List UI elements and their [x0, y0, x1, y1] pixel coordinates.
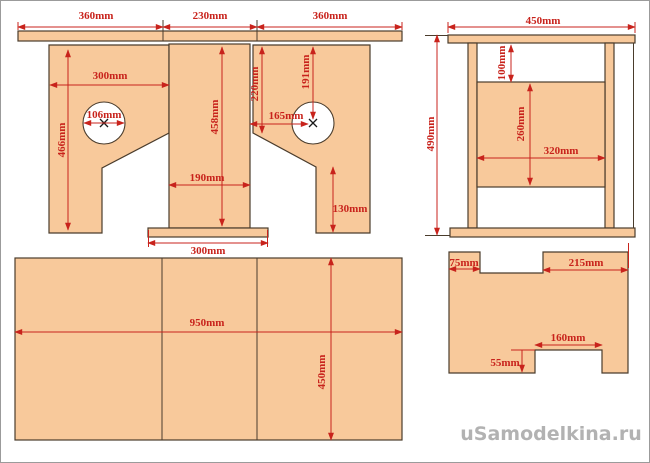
dim-label: 450mm [316, 355, 328, 390]
dim-label: 230mm [193, 10, 228, 22]
dim-label: 191mm [300, 55, 312, 90]
dim-label: 100mm [496, 46, 508, 81]
front-base-plate [148, 228, 268, 237]
tabletop-board [15, 258, 402, 440]
side-back-panel [477, 82, 605, 187]
dim-label: 300mm [191, 245, 226, 257]
front-center-column [169, 44, 250, 228]
dim-label: 360mm [79, 10, 114, 22]
dim-label: 300mm [93, 70, 128, 82]
shelf-panel-view: 75mm 215mm 160mm 55mm [449, 243, 629, 373]
tabletop-plan: 950mm 450mm [15, 258, 402, 440]
dim-label: 106mm [87, 109, 122, 121]
dim-label: 165mm [269, 110, 304, 122]
front-tabletop-edge [18, 31, 402, 41]
dim-label: 160mm [551, 332, 586, 344]
dim-label: 260mm [515, 107, 527, 142]
dim-label: 220mm [249, 67, 261, 102]
dim-label: 75mm [449, 257, 478, 269]
dim-label: 215mm [569, 257, 604, 269]
dim-label: 190mm [190, 172, 225, 184]
blueprint-page: 360mm 230mm 360mm 300mm 106mm 466mm 458m… [0, 0, 650, 463]
dim-label: 450mm [526, 15, 561, 27]
dim-label: 950mm [190, 317, 225, 329]
side-view: 450mm 490mm 100mm 260mm 320mm [425, 15, 635, 237]
dim-label: 458mm [209, 100, 221, 135]
side-left-rail [468, 43, 477, 228]
side-right-rail [605, 43, 614, 228]
blueprint-canvas: 360mm 230mm 360mm 300mm 106mm 466mm 458m… [0, 0, 650, 463]
dim-label: 360mm [313, 10, 348, 22]
side-bottom-plate [450, 228, 635, 237]
dim-label: 466mm [56, 123, 68, 158]
watermark-text: uSamodelkina.ru [460, 423, 642, 445]
dim-label: 320mm [544, 145, 579, 157]
dim-label: 55mm [490, 357, 519, 369]
dim-label: 490mm [425, 117, 437, 152]
front-view: 360mm 230mm 360mm 300mm 106mm 466mm 458m… [18, 10, 402, 257]
side-top-plate [448, 35, 635, 43]
dim-label: 130mm [333, 203, 368, 215]
